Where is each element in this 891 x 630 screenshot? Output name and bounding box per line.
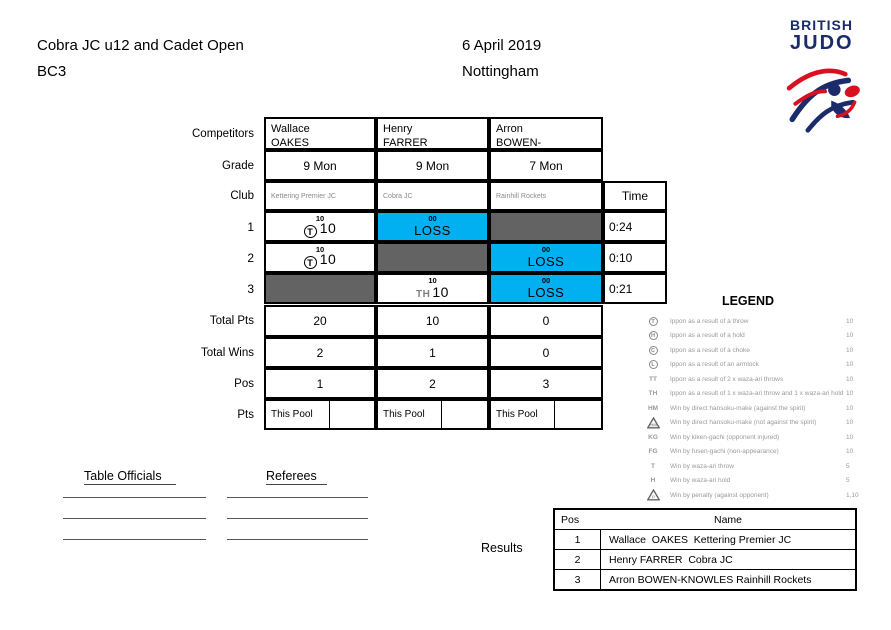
competitor-last-name: OAKES [271,136,369,150]
legend-item-text: Win by direct hansoku-make (not against … [666,419,846,426]
results-row: 3Arron BOWEN-KNOWLES Rainhill Rockets [555,569,855,589]
results-name-value: Henry FARRER Cobra JC [601,550,855,569]
pos-cell: 3 [489,368,603,399]
row-label-competitors: Competitors [160,128,264,140]
ippon-throw-icon: T [304,225,317,238]
results-pos-value: 3 [555,570,601,589]
row-label-club: Club [160,190,264,202]
legend-symbol-tt: TT [640,376,666,383]
legend-item-value: 10 [846,376,870,383]
match-time-cell: 0:24 [603,211,667,242]
row-grade: Grade 9 Mon 9 Mon 7 Mon [160,150,603,181]
legend-item-text: Win by fusen-gachi (non-appearance) [666,448,846,455]
competitor-first-name: Arron [496,122,596,136]
pos-cell: 1 [264,368,376,399]
results-name-value: Arron BOWEN-KNOWLES Rainhill Rockets [601,570,855,589]
event-subtitle: BC3 [37,62,66,82]
legend-item-text: Ippon as a result of 1 x waza-ari throw … [666,390,846,397]
row-competitors: Competitors Wallace OAKES Henry FARRER A… [160,117,603,150]
legend-circle-l-icon: L [640,360,666,369]
row-total-wins: Total Wins 2 1 0 [160,337,603,368]
legend-item-value: 10 [846,347,870,354]
row-round-3: 3 10 TH10 00 LOSS 0:21 [160,273,667,304]
club-cell: Kettering Premier JC [264,181,376,211]
legend-item-value: 10 [846,318,870,325]
score-points: 00 [491,276,601,285]
match-cell-win: 10 T10 [264,211,376,242]
loss-label: LOSS [491,254,601,269]
row-round-2: 2 10 T10 00 LOSS 0:10 [160,242,667,273]
legend-item: HMWin by direct hansoku-make (against th… [640,401,870,416]
match-cell-loss: 00 LOSS [376,211,489,242]
pos-cell: 2 [376,368,489,399]
legend-triangle-hm-icon: HM [640,417,666,429]
results-name-value: Wallace OAKES Kettering Premier JC [601,530,855,549]
legend-item-text: Win by waza-ari hold [666,477,846,484]
legend-item-text: Ippon as a result of a choke [666,347,846,354]
results-col-pos: Pos [555,510,601,529]
grade-cell: 9 Mon [264,150,376,181]
event-location: Nottingham [462,62,539,82]
legend-item-text: Ippon as a result of a throw [666,318,846,325]
signature-line [63,497,206,498]
match-cell-blocked [376,242,489,273]
results-pos-value: 2 [555,550,601,569]
total-pts-cell: 20 [264,305,376,337]
total-wins-cell: 2 [264,337,376,368]
row-label-pts: Pts [160,409,264,421]
match-cell-loss: 00 LOSS [489,242,603,273]
results-row: 2Henry FARRER Cobra JC [555,549,855,569]
svg-text:P: P [652,495,655,500]
legend-item-value: 10 [846,361,870,368]
row-label-total-wins: Total Wins [160,347,264,359]
signature-line [63,539,206,540]
legend-circle-c-icon: C [640,346,666,355]
signature-line [227,539,368,540]
match-cell-win: 10 T10 [264,242,376,273]
legend-symbol-fg: FG [640,448,666,455]
pts-cell: This Pool [264,399,376,430]
results-table: Pos Name 1Wallace OAKES Kettering Premie… [553,508,857,591]
results-header-row: Pos Name [555,510,855,529]
loss-label: LOSS [491,285,601,300]
competitor-first-name: Henry [383,122,482,136]
total-pts-cell: 0 [489,305,603,337]
legend-item: CIppon as a result of a choke10 [640,343,870,358]
club-cell: Cobra JC [376,181,489,211]
competitor-cell: Wallace OAKES [264,117,376,150]
svg-text:HM: HM [650,422,657,427]
row-label-round-1: 1 [160,220,264,234]
legend-item-value: 5 [846,477,870,484]
legend-list: TIppon as a result of a throw10HIppon as… [640,314,870,503]
waza-ari-throw-hold-symbol: TH [416,289,430,300]
legend-item-text: Win by kiken-gachi (opponent injured) [666,434,846,441]
row-label-pos: Pos [160,378,264,390]
legend-item-text: Ippon as a result of an armlock [666,361,846,368]
event-date: 6 April 2019 [462,36,541,56]
british-judo-logo: BRITISH JUDO [790,18,870,140]
legend-item: THIppon as a result of 1 x waza-ari thro… [640,387,870,402]
table-officials-heading: Table Officials [84,469,176,485]
legend-item-value: 10 [846,405,870,412]
results-col-name: Name [601,510,855,529]
score-detail: T10 [266,251,374,269]
club-cell: Rainhill Rockets [489,181,603,211]
results-row: 1Wallace OAKES Kettering Premier JC [555,529,855,549]
grade-cell: 9 Mon [376,150,489,181]
score-detail: TH10 [378,284,487,300]
event-title: Cobra JC u12 and Cadet Open [37,36,244,56]
legend-item: TWin by waza-ari throw5 [640,459,870,474]
score-points: 00 [378,214,487,223]
legend-item-value: 10 [846,390,870,397]
row-label-round-3: 3 [160,282,264,296]
legend-item: TIppon as a result of a throw10 [640,314,870,329]
row-label-total-pts: Total Pts [160,315,264,327]
legend-symbol-kg: KG [640,434,666,441]
logo-text-british: BRITISH [790,18,870,33]
legend-symbol-t: T [640,463,666,470]
legend-item: LIppon as a result of an armlock10 [640,358,870,373]
legend-item-value: 10 [846,448,870,455]
competitor-cell: Henry FARRER [376,117,489,150]
legend-symbol-hm: HM [640,405,666,412]
legend-item-value: 10 [846,332,870,339]
competitor-cell: Arron BOWEN-KNOWLES [489,117,603,150]
match-cell-blocked [264,273,376,304]
this-pool-label: This Pool [378,401,442,428]
logo-text-judo: JUDO [790,33,870,53]
results-pos-value: 1 [555,530,601,549]
score-detail: T10 [266,220,374,238]
legend-item-text: Win by penalty (against opponent) [666,492,846,499]
pts-cell: This Pool [489,399,603,430]
legend-title: LEGEND [640,294,856,308]
legend-triangle-p-icon: P [640,489,666,501]
legend-item-value: 10 [846,419,870,426]
legend-item: TTIppon as a result of 2 x waza-ari thro… [640,372,870,387]
row-round-1: 1 10 T10 00 LOSS 0:24 [160,211,667,242]
row-label-grade: Grade [160,160,264,172]
legend-item: HMWin by direct hansoku-make (not agains… [640,416,870,431]
score-points: 00 [491,245,601,254]
match-cell-loss: 00 LOSS [489,273,603,304]
row-total-pts: Total Pts 20 10 0 [160,305,603,337]
grade-cell: 7 Mon [489,150,603,181]
row-label-round-2: 2 [160,251,264,265]
legend-item: HWin by waza-ari hold5 [640,474,870,489]
legend-item-value: 10 [846,434,870,441]
referees-heading: Referees [266,469,327,485]
loss-label: LOSS [378,223,487,238]
signature-line [227,497,368,498]
signature-line [227,518,368,519]
total-wins-cell: 1 [376,337,489,368]
signature-line [63,518,206,519]
ippon-throw-icon: T [304,256,317,269]
total-pts-cell: 10 [376,305,489,337]
legend-item-text: Win by waza-ari throw [666,463,846,470]
match-cell-blocked [489,211,603,242]
row-pts: Pts This Pool This Pool This Pool [160,399,603,430]
row-pos: Pos 1 2 3 [160,368,603,399]
legend-item: PWin by penalty (against opponent)1,10 [640,488,870,503]
legend-item-text: Ippon as a result of 2 x waza-ari throws [666,376,846,383]
row-club: Club Kettering Premier JC Cobra JC Rainh… [160,181,667,211]
judoka-figure-icon [786,57,864,135]
legend-symbol-th: TH [640,390,666,397]
this-pool-label: This Pool [266,401,330,428]
legend-item: FGWin by fusen-gachi (non-appearance)10 [640,445,870,460]
legend-circle-t-icon: T [640,317,666,326]
match-cell-win: 10 TH10 [376,273,489,304]
legend-symbol-h: H [640,477,666,484]
time-column-header: Time [603,181,667,211]
competitor-first-name: Wallace [271,122,369,136]
legend-item-text: Ippon as a result of a hold [666,332,846,339]
legend-item: KGWin by kiken-gachi (opponent injured)1… [640,430,870,445]
match-time-cell: 0:10 [603,242,667,273]
results-label: Results [481,541,523,555]
this-pool-label: This Pool [491,401,555,428]
legend-item-value: 1,10 [846,492,870,499]
legend-item-value: 5 [846,463,870,470]
legend-item: HIppon as a result of a hold10 [640,329,870,344]
pts-cell: This Pool [376,399,489,430]
legend-circle-h-icon: H [640,331,666,340]
total-wins-cell: 0 [489,337,603,368]
legend-item-text: Win by direct hansoku-make (against the … [666,405,846,412]
competitor-last-name: FARRER [383,136,482,150]
